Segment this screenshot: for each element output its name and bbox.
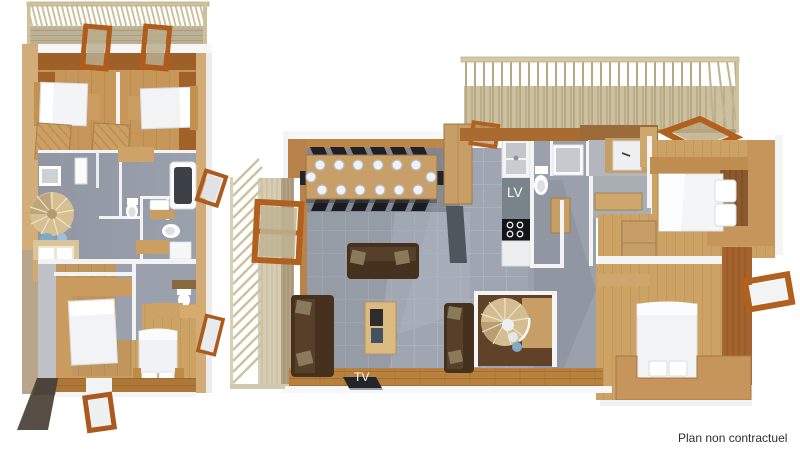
svg-text:Plan non contractuel: Plan non contractuel xyxy=(678,431,787,445)
svg-text:LV: LV xyxy=(507,185,523,200)
svg-text:TV: TV xyxy=(354,370,369,384)
